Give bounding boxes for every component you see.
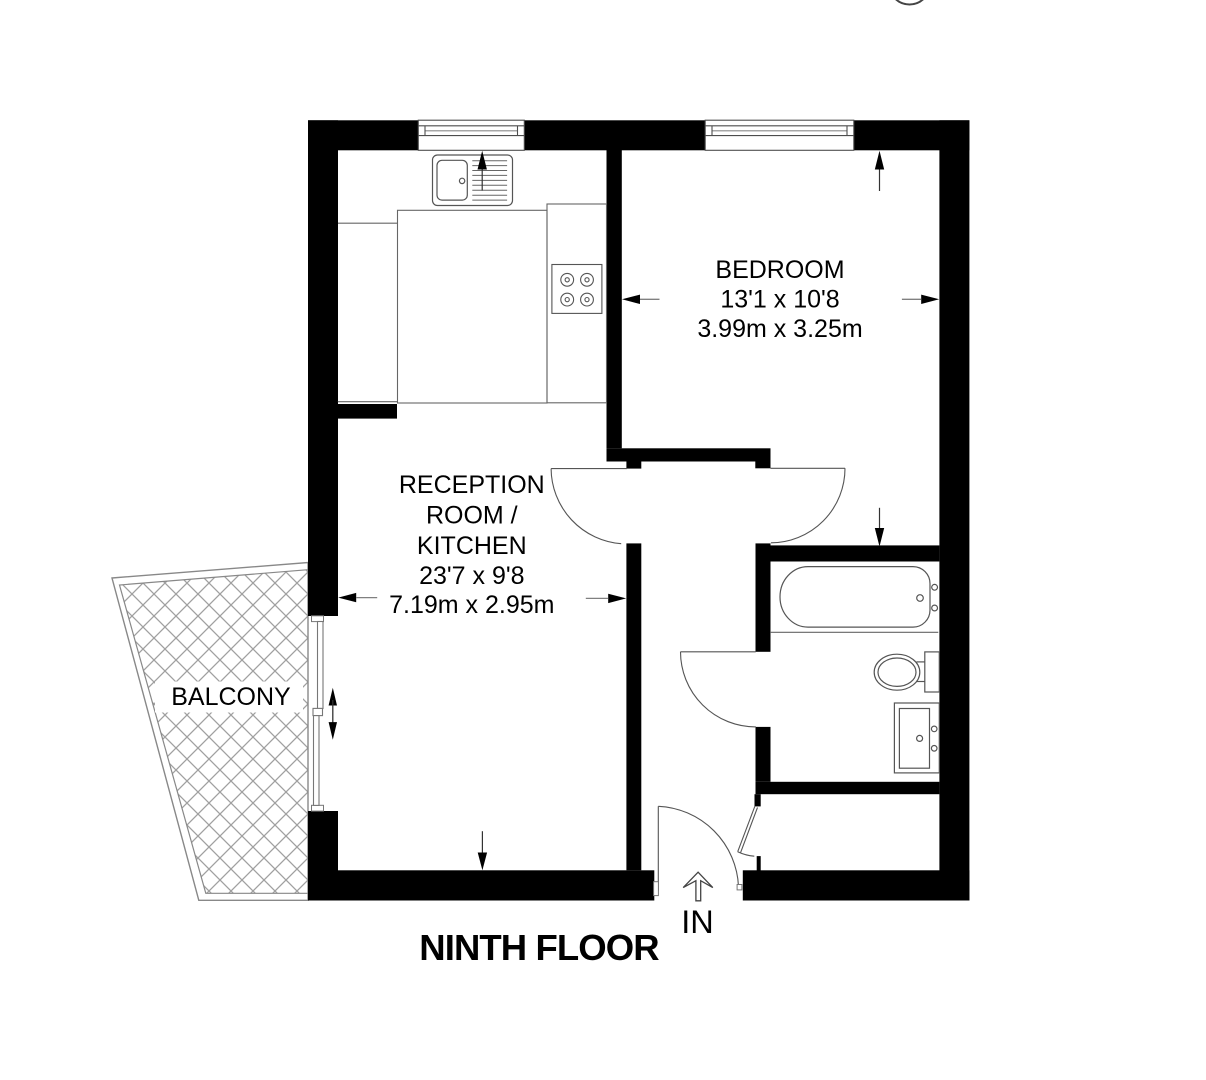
svg-text:IN: IN	[681, 904, 714, 940]
svg-text:23'7 x 9'8: 23'7 x 9'8	[419, 562, 524, 590]
svg-text:BALCONY: BALCONY	[171, 683, 291, 711]
svg-text:13'1 x 10'8: 13'1 x 10'8	[720, 286, 839, 314]
svg-text:ROOM /: ROOM /	[426, 502, 518, 530]
svg-text:3.99m x 3.25m: 3.99m x 3.25m	[697, 315, 862, 343]
svg-text:NINTH FLOOR: NINTH FLOOR	[419, 927, 659, 968]
svg-text:7.19m x 2.95m: 7.19m x 2.95m	[389, 591, 554, 619]
svg-text:KITCHEN: KITCHEN	[417, 532, 527, 560]
svg-text:BEDROOM: BEDROOM	[715, 256, 844, 284]
svg-text:RECEPTION: RECEPTION	[399, 471, 545, 499]
